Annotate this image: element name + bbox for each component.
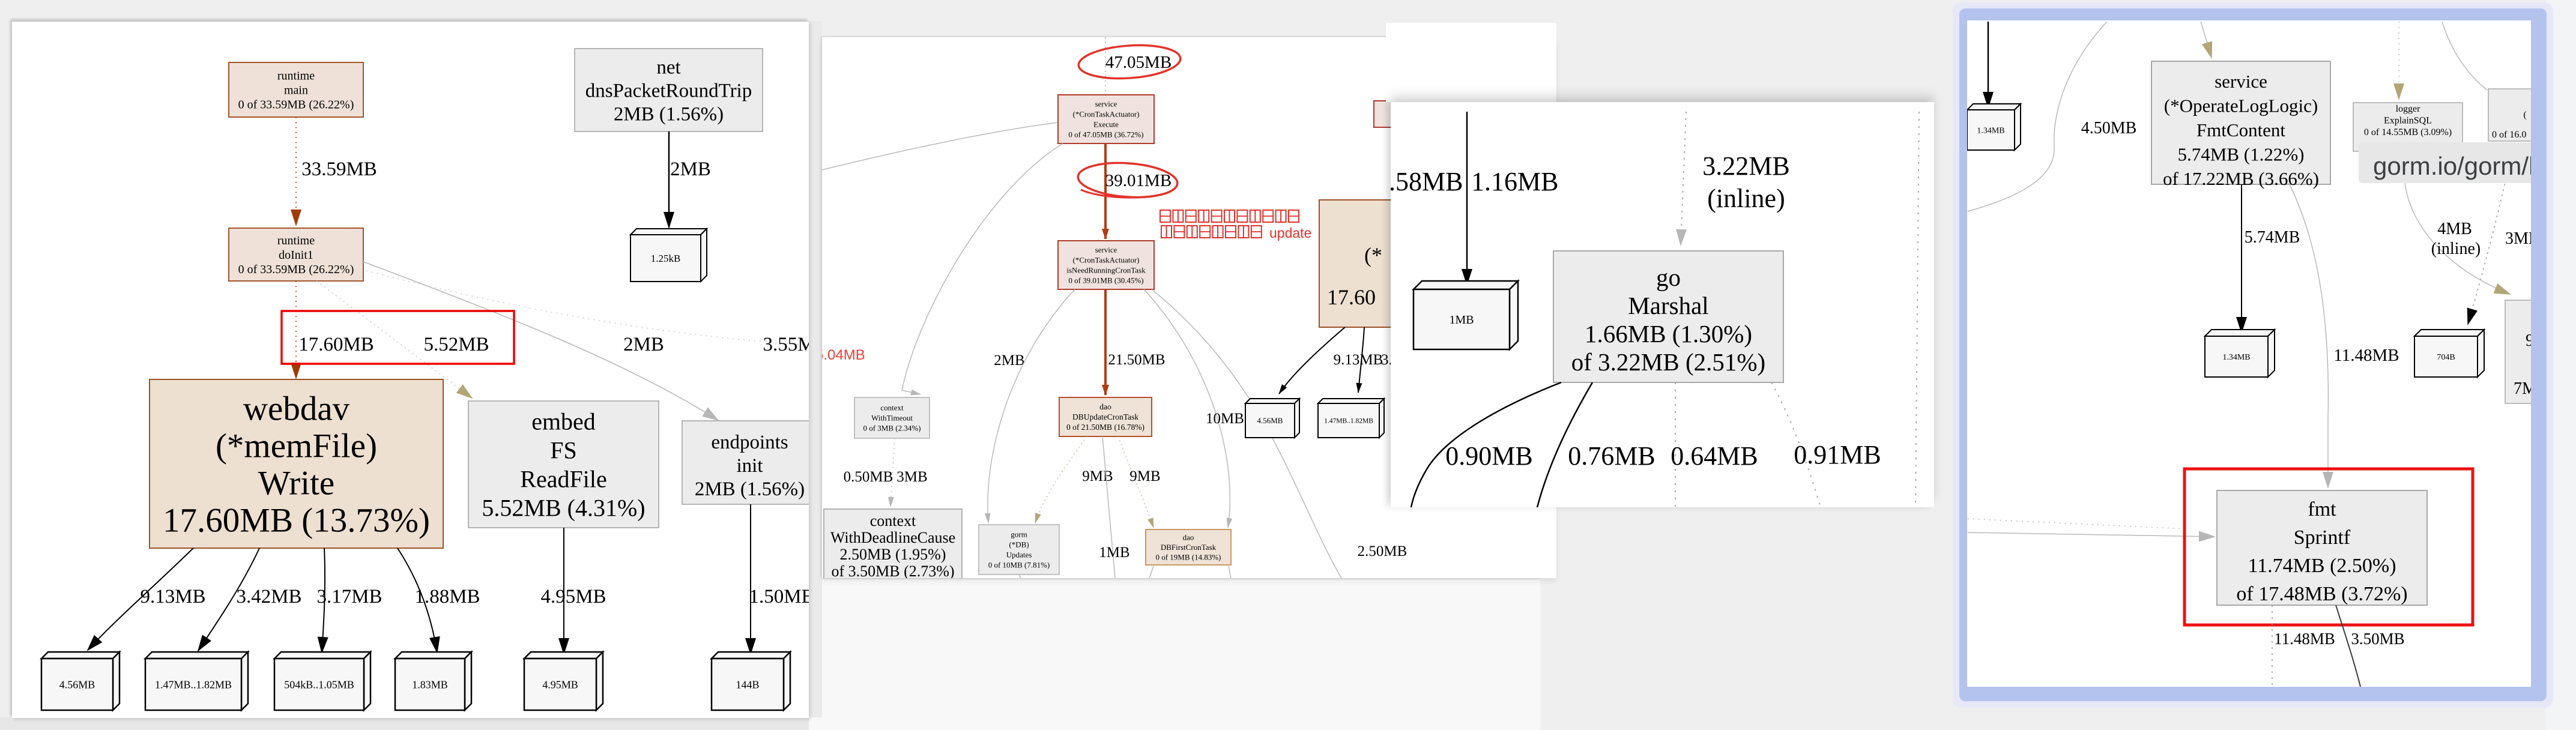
svg-text:10MB: 10MB [1206,411,1244,427]
svg-text:dnsPacketRoundTrip: dnsPacketRoundTrip [585,80,752,102]
svg-text:9MB: 9MB [1082,468,1113,484]
svg-text:context: context [880,403,904,412]
svg-text:4.56MB: 4.56MB [1257,416,1283,425]
svg-text:1.47MB..1.82MB: 1.47MB..1.82MB [1324,418,1373,425]
svg-text:DBUpdateCronTask: DBUpdateCronTask [1072,412,1138,421]
svg-text:2MB (1.56%): 2MB (1.56%) [614,104,724,125]
svg-text:11.48MB: 11.48MB [2333,346,2399,365]
svg-text:5.52MB (4.31%): 5.52MB (4.31%) [482,495,645,522]
svg-text:2.50MB: 2.50MB [1358,543,1407,560]
svg-text:isNeedRunningCronTask: isNeedRunningCronTask [1066,266,1146,275]
svg-text:2MB: 2MB [994,352,1024,369]
svg-text:embed: embed [531,408,596,435]
svg-text:1.16MB: 1.16MB [1471,167,1558,196]
svg-text:1.47MB..1.82MB: 1.47MB..1.82MB [155,678,232,690]
svg-text:FmtContent: FmtContent [2197,119,2286,140]
svg-text:(inline): (inline) [2431,240,2481,258]
svg-text:4MB: 4MB [2437,220,2472,238]
svg-text:1.66MB (1.30%): 1.66MB (1.30%) [1585,320,1752,348]
svg-text:3.50MB: 3.50MB [2351,630,2404,648]
svg-text:0.90MB: 0.90MB [1445,441,1532,471]
svg-text:of 17.48MB (3.72%): of 17.48MB (3.72%) [2236,583,2407,605]
svg-text:33.59MB: 33.59MB [301,158,377,180]
svg-text:init: init [736,455,763,477]
svg-text:0 of 39.01MB (30.45%): 0 of 39.01MB (30.45%) [1068,276,1143,285]
svg-text:1MB: 1MB [1099,544,1129,561]
svg-text:FS: FS [550,437,577,464]
svg-text:Marshal: Marshal [1628,292,1708,319]
svg-text:17.60: 17.60 [1327,285,1376,309]
svg-text:704B: 704B [2437,353,2455,362]
svg-text:net: net [656,57,680,79]
svg-text:Sprintf: Sprintf [2294,526,2351,549]
svg-text:2MB (1.56%): 2MB (1.56%) [695,478,805,500]
svg-text:17.60MB: 17.60MB [298,334,374,355]
svg-text:service: service [1095,100,1117,109]
svg-text:endpoints: endpoints [711,432,788,453]
svg-text:WithDeadlineCause: WithDeadlineCause [830,529,955,546]
svg-text:Updates: Updates [1006,551,1032,560]
svg-text:of 3.50MB (2.73%): of 3.50MB (2.73%) [831,563,954,578]
svg-text:DBFirstCronTask: DBFirstCronTask [1161,543,1217,552]
svg-text:5.04MB: 5.04MB [822,347,865,363]
svg-text:runtime: runtime [277,234,315,247]
svg-text:9.13MB: 9.13MB [140,586,205,608]
svg-text:doInit1: doInit1 [279,249,313,262]
svg-text:6.58MB: 6.58MB [1391,167,1463,196]
svg-text:0.64MB: 0.64MB [1670,441,1758,471]
svg-text:ExplainSQL: ExplainSQL [2384,116,2432,126]
svg-text:4.56MB: 4.56MB [59,678,95,690]
svg-text:11.74MB (2.50%): 11.74MB (2.50%) [2248,555,2396,577]
svg-text:9MB: 9MB [1129,468,1160,484]
svg-text:5.52MB: 5.52MB [423,334,489,355]
svg-text:(*CronTaskActuator): (*CronTaskActuator) [1072,110,1139,119]
svg-text:(*DB): (*DB) [1009,540,1029,549]
svg-text:1.83MB: 1.83MB [412,678,448,690]
svg-text:(*: (* [1364,243,1382,267]
svg-text:1MB: 1MB [1449,313,1474,327]
svg-text:runtime: runtime [277,70,315,83]
svg-text:(: ( [2523,110,2526,120]
svg-text:0 of 16.0: 0 of 16.0 [2492,130,2526,140]
svg-text:3.22MB: 3.22MB [1702,151,1789,181]
svg-text:144B: 144B [736,678,759,690]
svg-text:Execute: Execute [1093,120,1119,129]
svg-text:4.95MB: 4.95MB [540,586,606,608]
svg-text:(*memFile): (*memFile) [216,427,377,465]
svg-text:dao: dao [1183,533,1194,542]
svg-text:1.34MB: 1.34MB [2222,353,2250,362]
svg-text:0.50MB: 0.50MB [844,469,893,485]
svg-text:service: service [2215,71,2267,92]
svg-text:service: service [1095,246,1117,255]
svg-text:Write: Write [258,465,334,502]
svg-text:dao: dao [1099,402,1111,411]
svg-text:0 of 3MB (2.34%): 0 of 3MB (2.34%) [863,424,921,433]
svg-text:1.88MB: 1.88MB [414,586,480,608]
svg-text:(*OperateLogLogic): (*OperateLogLogic) [2164,95,2318,116]
svg-text:39.01MB: 39.01MB [1105,171,1172,190]
svg-text:5.74MB (1.22%): 5.74MB (1.22%) [2178,144,2305,165]
svg-text:update: update [1269,225,1311,241]
svg-text:0 of 47.05MB (36.72%): 0 of 47.05MB (36.72%) [1068,130,1143,139]
svg-text:9: 9 [2526,331,2531,350]
svg-text:3.42MB: 3.42MB [236,586,301,608]
svg-text:(*CronTaskActuator): (*CronTaskActuator) [1072,256,1139,265]
svg-text:0 of 33.59MB (26.22%): 0 of 33.59MB (26.22%) [238,98,354,112]
svg-text:go: go [1656,264,1681,291]
svg-text:2MB: 2MB [623,334,664,355]
svg-text:(inline): (inline) [1707,184,1785,213]
svg-text:3MB: 3MB [2505,229,2531,248]
svg-text:logger: logger [2396,104,2421,114]
svg-text:0 of 21.50MB (16.78%): 0 of 21.50MB (16.78%) [1066,423,1144,432]
svg-text:5.74MB: 5.74MB [2245,228,2300,247]
svg-text:47.05MB: 47.05MB [1105,53,1172,72]
svg-text:1.25kB: 1.25kB [651,253,681,264]
svg-text:0 of 19MB (14.83%): 0 of 19MB (14.83%) [1155,553,1221,562]
svg-text:2.50MB (1.95%): 2.50MB (1.95%) [840,546,946,563]
svg-text:0 of 33.59MB (26.22%): 0 of 33.59MB (26.22%) [238,263,354,276]
svg-text:7M: 7M [2514,379,2531,398]
svg-text:1.50MB: 1.50MB [749,586,809,608]
svg-text:0.76MB: 0.76MB [1568,441,1655,471]
svg-text:21.50MB: 21.50MB [1108,352,1165,368]
svg-text:0 of 14.55MB (3.09%): 0 of 14.55MB (3.09%) [2364,127,2452,137]
svg-text:ReadFile: ReadFile [520,466,606,493]
svg-text:2MB: 2MB [670,158,711,180]
svg-text:3.55MB: 3.55MB [763,334,809,355]
svg-text:webdav: webdav [243,390,350,428]
svg-text:fmt: fmt [2308,498,2336,520]
svg-text:of 3.22MB (2.51%): of 3.22MB (2.51%) [1571,348,1765,376]
svg-text:1.34MB: 1.34MB [1977,126,2004,135]
svg-text:0.91MB: 0.91MB [1794,440,1881,469]
svg-text:WithTimeout: WithTimeout [871,414,913,423]
svg-text:4.95MB: 4.95MB [542,678,578,690]
svg-text:0 of 10MB (7.81%): 0 of 10MB (7.81%) [988,561,1050,570]
svg-text:11.48MB: 11.48MB [2274,630,2335,648]
svg-text:504kB..1.05MB: 504kB..1.05MB [284,678,354,690]
svg-text:gorm.io/gorm/l: gorm.io/gorm/l [2373,152,2531,180]
svg-text:main: main [284,84,308,97]
svg-text:4.50MB: 4.50MB [2081,119,2137,137]
svg-text:gorm: gorm [1011,530,1027,539]
svg-text:9.13MB: 9.13MB [1334,352,1383,368]
svg-text:context: context [870,512,916,529]
svg-text:3.17MB: 3.17MB [316,586,382,608]
svg-text:17.60MB (13.73%): 17.60MB (13.73%) [163,502,430,540]
svg-text:3MB: 3MB [896,469,927,485]
